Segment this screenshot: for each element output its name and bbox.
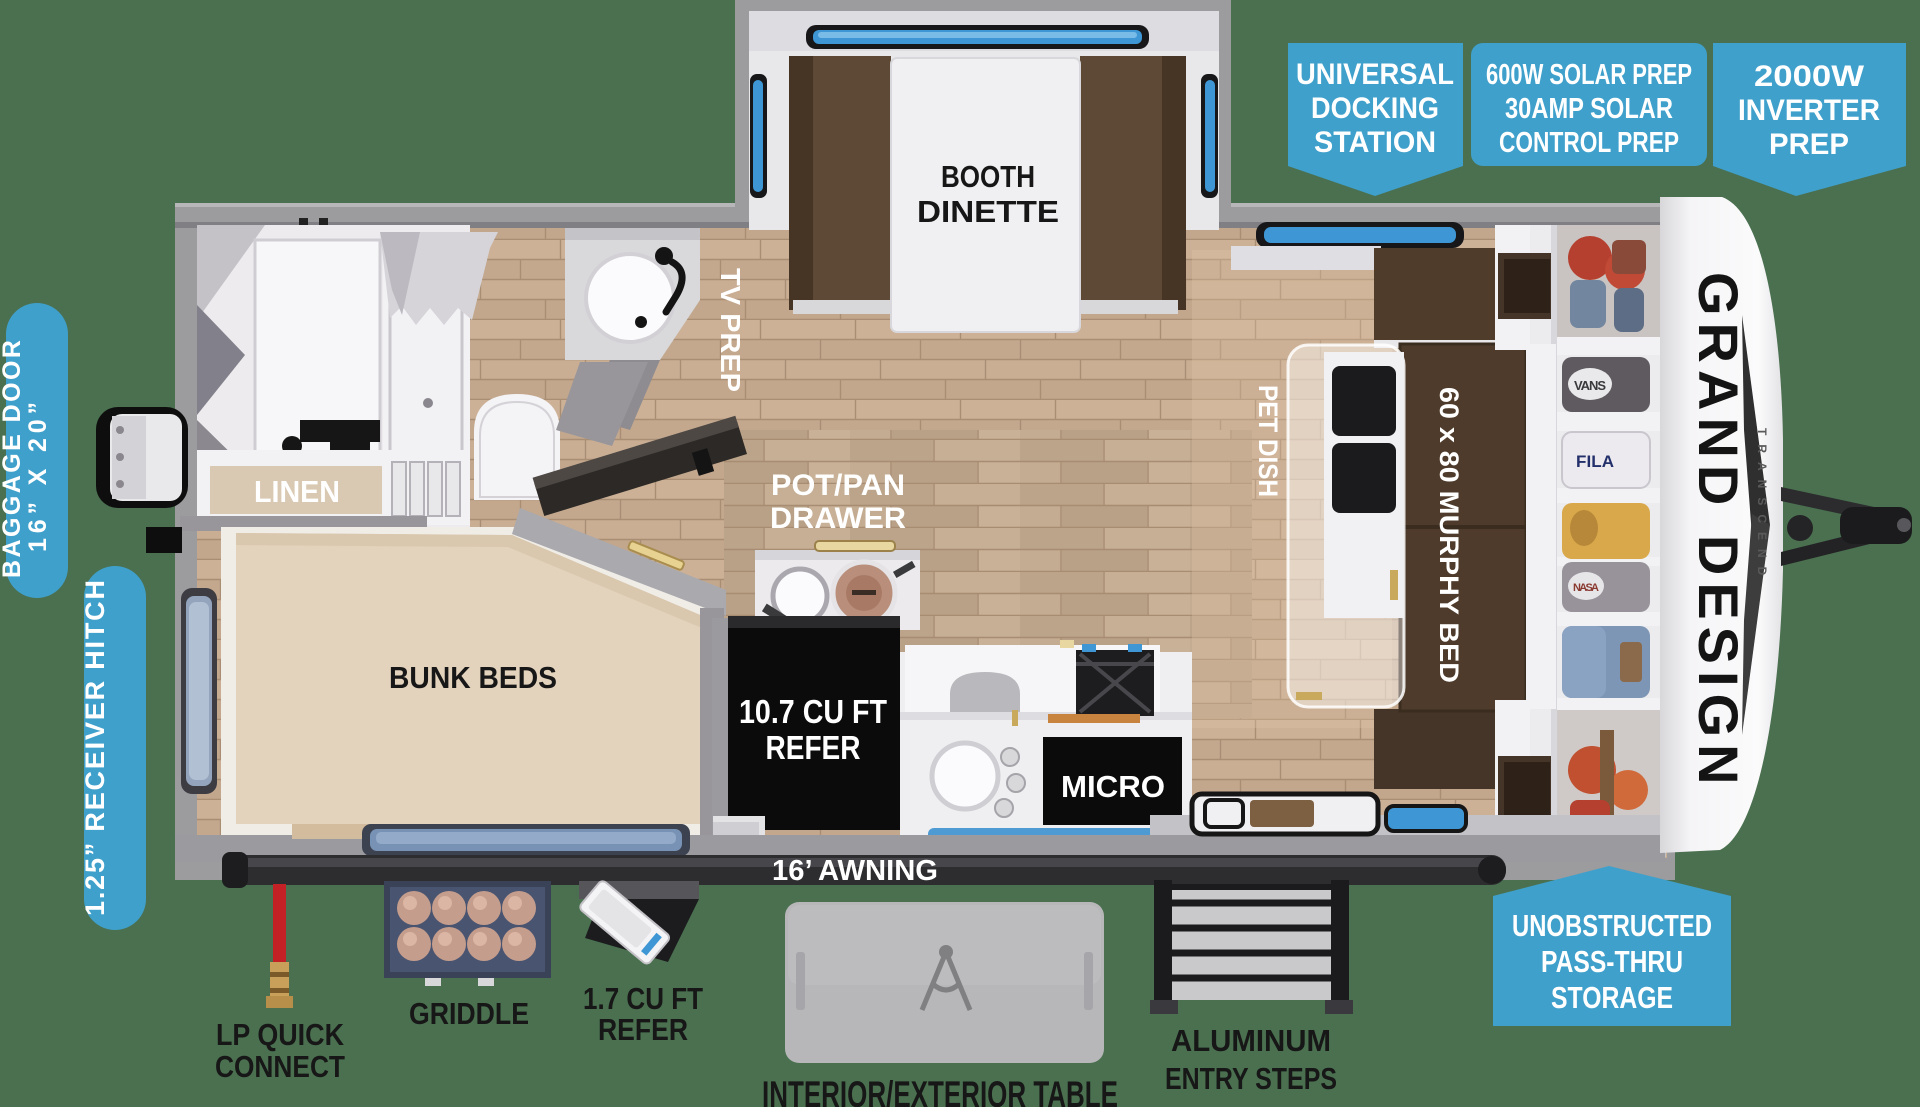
svg-text:LP QUICK: LP QUICK — [216, 1017, 345, 1052]
svg-text:LINEN: LINEN — [254, 474, 340, 509]
svg-text:1.7 CU FT: 1.7 CU FT — [583, 981, 703, 1016]
svg-text:DOCKING: DOCKING — [1311, 92, 1439, 125]
svg-text:BAGGAGE DOOR: BAGGAGE DOOR — [0, 340, 26, 578]
svg-text:GRAND DESIGN: GRAND DESIGN — [1687, 272, 1750, 792]
svg-text:ALUMINUM: ALUMINUM — [1171, 1023, 1331, 1058]
svg-text:INTERIOR/EXTERIOR TABLE: INTERIOR/EXTERIOR TABLE — [762, 1074, 1118, 1107]
svg-text:DINETTE: DINETTE — [917, 194, 1059, 229]
svg-text:GRIDDLE: GRIDDLE — [409, 996, 529, 1031]
svg-text:PASS-THRU: PASS-THRU — [1541, 944, 1683, 979]
svg-text:2000W: 2000W — [1754, 60, 1865, 93]
svg-text:30AMP SOLAR: 30AMP SOLAR — [1505, 93, 1673, 125]
svg-text:REFER: REFER — [598, 1012, 688, 1047]
svg-text:BOOTH: BOOTH — [941, 159, 1035, 194]
svg-text:UNIVERSAL: UNIVERSAL — [1296, 58, 1454, 91]
svg-text:CONTROL PREP: CONTROL PREP — [1499, 127, 1679, 159]
svg-text:MICRO: MICRO — [1061, 769, 1165, 804]
svg-text:CONNECT: CONNECT — [215, 1049, 345, 1084]
svg-text:REFER: REFER — [766, 729, 861, 766]
svg-text:ENTRY STEPS: ENTRY STEPS — [1165, 1061, 1337, 1096]
svg-text:600W SOLAR PREP: 600W SOLAR PREP — [1486, 59, 1692, 91]
svg-text:PET DISH: PET DISH — [1253, 385, 1283, 497]
svg-text:TRANSCEND: TRANSCEND — [1755, 428, 1769, 584]
svg-text:60 x 80 MURPHY BED: 60 x 80 MURPHY BED — [1434, 387, 1464, 683]
svg-text:1.25” RECEIVER HITCH: 1.25” RECEIVER HITCH — [80, 580, 110, 916]
svg-text:POT/PAN: POT/PAN — [771, 469, 905, 502]
svg-text:STORAGE: STORAGE — [1551, 980, 1673, 1015]
svg-text:TV PREP: TV PREP — [715, 268, 746, 392]
svg-text:NASA: NASA — [1573, 582, 1599, 594]
svg-text:UNOBSTRUCTED: UNOBSTRUCTED — [1512, 908, 1712, 943]
svg-text:FILA: FILA — [1576, 452, 1614, 471]
svg-text:STATION: STATION — [1314, 126, 1436, 159]
svg-text:DRAWER: DRAWER — [770, 502, 906, 535]
svg-text:16’ AWNING: 16’ AWNING — [772, 855, 938, 887]
svg-text:PREP: PREP — [1769, 128, 1849, 161]
svg-text:INVERTER: INVERTER — [1738, 94, 1880, 127]
svg-text:16” X 20”: 16” X 20” — [24, 402, 52, 552]
svg-text:10.7 CU FT: 10.7 CU FT — [739, 693, 887, 730]
svg-text:BUNK BEDS: BUNK BEDS — [389, 660, 557, 695]
svg-text:VANS: VANS — [1574, 378, 1606, 393]
